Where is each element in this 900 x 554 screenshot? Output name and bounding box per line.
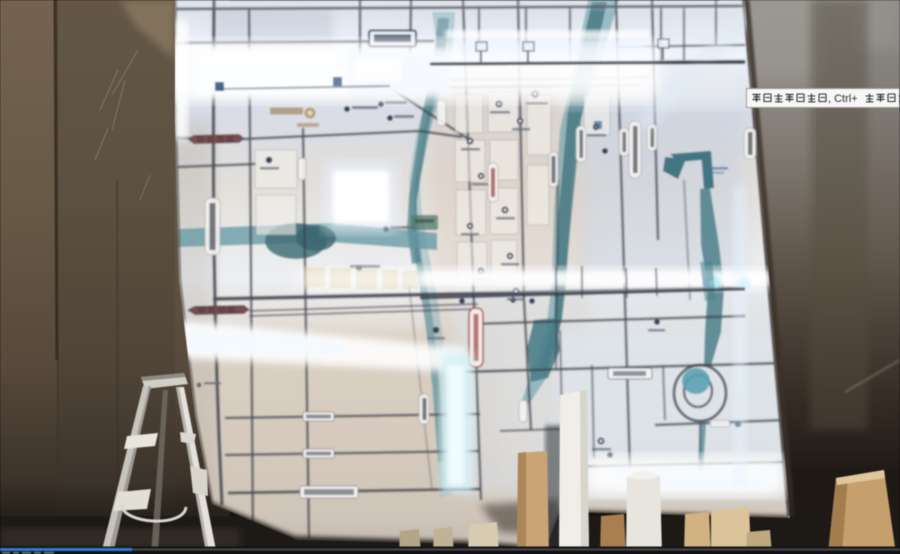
- svg-text:, Ctrl+: , Ctrl+: [828, 93, 858, 105]
